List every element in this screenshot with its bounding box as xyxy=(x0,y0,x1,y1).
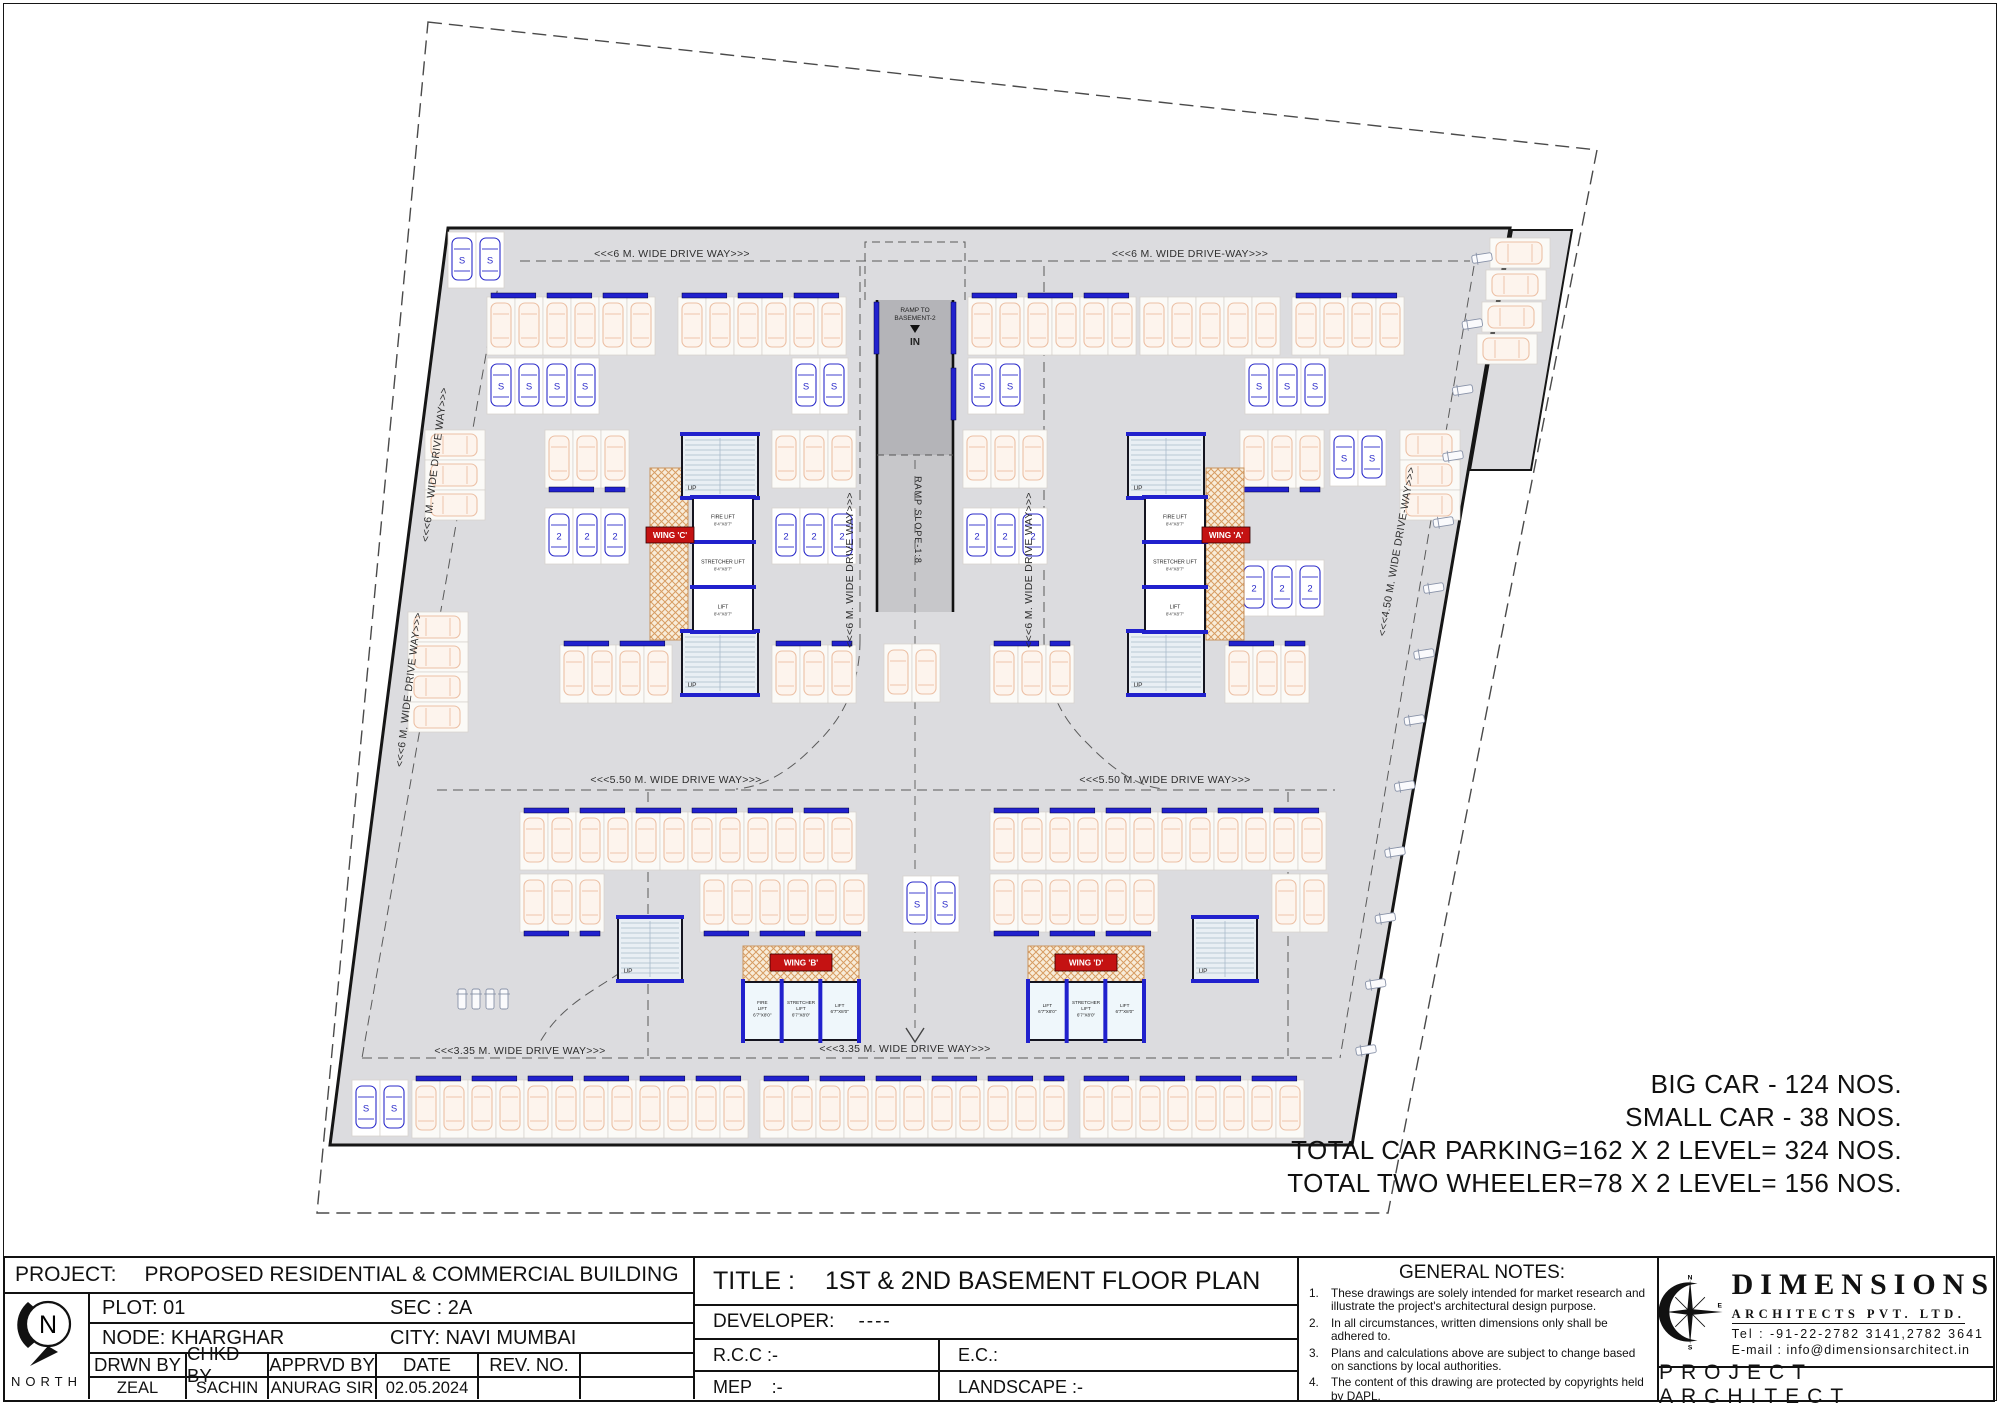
car-icon xyxy=(1272,436,1292,480)
note-item: 2. In all circumstances, written dimensi… xyxy=(1309,1317,1651,1344)
lift-door-bar xyxy=(1026,979,1030,1043)
up-label: UP xyxy=(623,968,632,975)
parking-stats: BIG CAR - 124 NOS. SMALL CAR - 38 NOS. T… xyxy=(1287,1068,1902,1200)
car-icon xyxy=(547,303,567,347)
car-size-label: S xyxy=(1007,382,1013,393)
door-bar xyxy=(1191,915,1259,919)
parking-strip: 222 xyxy=(1240,560,1324,616)
car-size-label: 2 xyxy=(584,532,589,543)
lift-door-bar xyxy=(1065,979,1069,1043)
car-icon xyxy=(1028,303,1048,347)
wheel-stop xyxy=(1218,808,1263,813)
car-size-label: S xyxy=(1256,382,1262,393)
wheel-stop xyxy=(1050,931,1095,936)
compass-logo-icon: N E S xyxy=(1659,1260,1726,1364)
wheel-stop xyxy=(1084,1076,1129,1081)
car-icon xyxy=(820,1086,840,1130)
car-icon xyxy=(549,436,569,480)
lift-size-label: 8'4"X8'7" xyxy=(714,567,733,572)
lift-size-label: 8'4"X8'7" xyxy=(714,612,733,617)
up-label: UP xyxy=(1198,968,1207,975)
plot-value: PLOT: 01 xyxy=(102,1297,185,1320)
lift-name-label: 6'7"X8'0" xyxy=(1116,1009,1135,1014)
car-icon xyxy=(603,303,623,347)
car-icon xyxy=(580,880,600,924)
north-label: NORTH xyxy=(11,1374,82,1389)
car-icon xyxy=(1022,818,1042,862)
car-icon xyxy=(972,303,992,347)
parking-strip xyxy=(1272,874,1328,932)
car-icon xyxy=(720,818,740,862)
mep-cell: MEP :- xyxy=(695,1372,940,1402)
car-icon xyxy=(776,818,796,862)
car-size-label: S xyxy=(363,1104,369,1115)
wheel-stop xyxy=(804,808,849,813)
car-icon xyxy=(552,818,572,862)
car-size-label: S xyxy=(914,900,920,911)
car-icon xyxy=(1106,880,1126,924)
header-date: DATE xyxy=(377,1354,479,1378)
lift-name-label: LIFT xyxy=(758,1006,768,1011)
bike-icon xyxy=(500,989,508,1009)
car-icon xyxy=(414,676,460,698)
lift-door-bar xyxy=(780,979,784,1043)
car-icon xyxy=(1134,818,1154,862)
car-icon xyxy=(1256,303,1276,347)
lift-name-label: STRETCHER LIFT xyxy=(701,560,746,566)
parking-strip xyxy=(700,874,868,936)
car-icon xyxy=(1304,880,1324,924)
wheel-stop xyxy=(1229,641,1274,646)
firm-subtitle: ARCHITECTS PVT. LTD. xyxy=(1732,1307,1966,1324)
car-icon xyxy=(1106,818,1126,862)
car-icon xyxy=(1296,303,1316,347)
wing-label: WING 'C' xyxy=(653,531,687,540)
lift-name-label: FIRE LIFT xyxy=(711,515,736,521)
role-label: PROJECT ARCHITECT xyxy=(1659,1361,1995,1404)
wheel-stop xyxy=(603,293,648,298)
lift-name-label: LIFT xyxy=(1043,1003,1053,1008)
wheel-stop xyxy=(1285,641,1305,646)
door-bar xyxy=(616,915,684,919)
developer-value: ---- xyxy=(858,1311,891,1333)
north-cell: N NORTH xyxy=(5,1294,90,1399)
wheel-stop xyxy=(580,931,600,936)
note-item: 1. These drawings are solely intended fo… xyxy=(1309,1287,1651,1314)
car-icon xyxy=(994,651,1014,695)
lift-size-label: 8'4"X8'7" xyxy=(1166,612,1185,617)
parking-strip xyxy=(487,293,655,355)
car-icon xyxy=(804,436,824,480)
car-icon xyxy=(732,880,752,924)
car-icon xyxy=(1172,303,1192,347)
car-icon xyxy=(1252,1086,1272,1130)
wheel-stop xyxy=(1050,641,1070,646)
note-number: 4. xyxy=(1309,1376,1331,1402)
lift-name-label: 6'7"X8'0" xyxy=(753,1012,772,1017)
lift-name-label: FIRE LIFT xyxy=(1163,515,1188,521)
car-icon xyxy=(605,436,625,480)
lift-name-label: 6'7"X8'0" xyxy=(792,1012,811,1017)
car-icon xyxy=(1246,818,1266,862)
ramp-kerb xyxy=(951,368,956,420)
car-icon xyxy=(1406,434,1452,456)
car-icon xyxy=(1134,880,1154,924)
note-number: 1. xyxy=(1309,1287,1331,1314)
car-icon xyxy=(414,706,460,728)
car-size-label: 2 xyxy=(1307,584,1312,595)
car-size-label: S xyxy=(831,382,837,393)
car-size-label: 2 xyxy=(974,532,979,543)
car-size-label: S xyxy=(391,1104,397,1115)
mep-label: MEP :- xyxy=(713,1377,783,1398)
parking-strip xyxy=(990,874,1158,936)
car-icon xyxy=(844,880,864,924)
car-size-label: 2 xyxy=(783,532,788,543)
landscape-label: LANDSCAPE :- xyxy=(958,1377,1083,1398)
developer-row: DEVELOPER: ---- xyxy=(695,1306,1299,1340)
note-text: In all circumstances, written dimensions… xyxy=(1331,1317,1651,1344)
wheel-stop xyxy=(1050,808,1095,813)
lift-door-bar xyxy=(1142,585,1208,589)
car-icon xyxy=(1050,880,1070,924)
car-icon xyxy=(792,1086,812,1130)
project-value: PROPOSED RESIDENTIAL & COMMERCIAL BUILDI… xyxy=(145,1263,679,1287)
car-icon xyxy=(1257,651,1277,695)
bike-icon xyxy=(486,989,494,1009)
car-icon xyxy=(524,880,544,924)
car-size-label: S xyxy=(942,900,948,911)
wheel-stop xyxy=(528,1076,573,1081)
lift-door-bar xyxy=(1142,630,1208,634)
value-apprvd: ANURAG SIR xyxy=(269,1378,377,1399)
car-size-label: S xyxy=(582,382,588,393)
car-icon xyxy=(764,1086,784,1130)
car-icon xyxy=(524,818,544,862)
car-icon xyxy=(804,818,824,862)
car-size-label: 2 xyxy=(556,532,561,543)
wheel-stop xyxy=(696,1076,741,1081)
parking-strip xyxy=(520,808,856,870)
car-icon xyxy=(1224,1086,1244,1130)
door-bar xyxy=(680,693,760,697)
car-icon xyxy=(552,880,572,924)
car-icon xyxy=(1488,306,1534,328)
wheel-stop xyxy=(1162,808,1207,813)
car-size-label: 2 xyxy=(1279,584,1284,595)
firm-email: E-mail : info@dimensionsarchitect.in xyxy=(1732,1343,1995,1357)
general-notes: GENERAL NOTES: 1. These drawings are sol… xyxy=(1299,1258,1659,1402)
car-icon xyxy=(960,1086,980,1130)
parking-strip xyxy=(1140,297,1280,355)
value-date: 02.05.2024 xyxy=(377,1378,479,1399)
car-icon xyxy=(876,1086,896,1130)
parking-strip xyxy=(1477,334,1537,364)
car-icon xyxy=(1300,436,1320,480)
parking-strip: SSSS xyxy=(487,358,599,414)
car-icon xyxy=(564,651,584,695)
lift-name-label: LIFT xyxy=(1081,1006,1091,1011)
car-icon xyxy=(988,1086,1008,1130)
boundaries xyxy=(317,22,1597,1213)
title-value: 1ST & 2ND BASEMENT FLOOR PLAN xyxy=(825,1267,1260,1296)
rcc-label: R.C.C :- xyxy=(713,1345,778,1366)
note-number: 3. xyxy=(1309,1347,1331,1374)
note-text: These drawings are solely intended for m… xyxy=(1331,1287,1651,1314)
lift-door-bar xyxy=(1142,540,1208,544)
parking-strip: 222 xyxy=(545,508,629,564)
wheel-stop xyxy=(994,808,1039,813)
car-size-label: S xyxy=(803,382,809,393)
car-icon xyxy=(1274,818,1294,862)
wheel-stop xyxy=(605,487,625,492)
note-item: 4. The content of this drawing are prote… xyxy=(1309,1376,1651,1402)
wheel-stop xyxy=(564,641,609,646)
car-icon xyxy=(592,651,612,695)
wheel-stop xyxy=(524,808,569,813)
car-icon xyxy=(995,436,1015,480)
car-icon xyxy=(584,1086,604,1130)
wheel-stop xyxy=(876,1076,921,1081)
car-icon xyxy=(994,818,1014,862)
driveway-label: <<<5.50 M. WIDE DRIVE WAY>>> xyxy=(1079,774,1250,786)
door-bar xyxy=(1126,693,1206,697)
wheel-stop xyxy=(1140,1076,1185,1081)
car-size-label: S xyxy=(554,382,560,393)
car-icon xyxy=(444,1086,464,1130)
car-icon xyxy=(738,303,758,347)
car-icon xyxy=(832,436,852,480)
car-icon xyxy=(1352,303,1372,347)
wheel-stop xyxy=(1106,808,1151,813)
wheel-stop xyxy=(692,808,737,813)
lift-name-label: 6'7"X8'0" xyxy=(1077,1012,1096,1017)
parking-strip xyxy=(678,293,846,355)
car-icon xyxy=(832,818,852,862)
parking-strip xyxy=(968,293,1136,355)
note-text: The content of this drawing are protecte… xyxy=(1331,1376,1651,1402)
ramp-to-label: RAMP TO xyxy=(900,307,929,314)
car-icon xyxy=(1016,1086,1036,1130)
stat-line: TOTAL CAR PARKING=162 X 2 LEVEL= 324 NOS… xyxy=(1287,1134,1902,1167)
wheel-stop xyxy=(682,293,727,298)
wheel-stop xyxy=(640,1076,685,1081)
parking-strip xyxy=(1292,293,1404,355)
parking-strip xyxy=(1240,430,1324,492)
ramp-to-label: BASEMENT-2 xyxy=(894,315,936,322)
parking-strip xyxy=(1482,302,1542,332)
car-icon xyxy=(1218,818,1238,862)
car-icon xyxy=(1492,274,1538,296)
car-size-label: S xyxy=(1284,382,1290,393)
node-row: NODE: KHARGHAR CITY: NAVI MUMBAI xyxy=(90,1324,695,1354)
wheel-stop xyxy=(776,641,821,646)
wheel-stop xyxy=(547,293,592,298)
compass-e: E xyxy=(1717,1303,1722,1310)
wheel-stop xyxy=(748,808,793,813)
wheel-stop xyxy=(1084,293,1129,298)
wheel-stop xyxy=(620,641,665,646)
car-icon xyxy=(631,303,651,347)
car-icon xyxy=(1112,1086,1132,1130)
parking-strip: SS xyxy=(792,358,848,414)
wheel-stop xyxy=(416,1076,461,1081)
parking-strip xyxy=(1225,641,1309,703)
project-architect-strip: PROJECT ARCHITECT xyxy=(1659,1368,1995,1402)
wing-label: WING 'D' xyxy=(1069,959,1103,968)
car-icon xyxy=(1056,303,1076,347)
parking-strip xyxy=(963,430,1047,488)
value-chkd: SACHIN xyxy=(187,1378,269,1399)
car-icon xyxy=(710,303,730,347)
car-size-label: 2 xyxy=(811,532,816,543)
car-size-label: S xyxy=(498,382,504,393)
wheel-stop xyxy=(816,931,861,936)
door-bar xyxy=(680,432,760,436)
wheel-stop xyxy=(580,808,625,813)
car-icon xyxy=(776,651,796,695)
car-icon xyxy=(748,818,768,862)
wheel-stop xyxy=(972,293,1017,298)
drawing-sheet: RAMP TOBASEMENT-2INRAMP SLOPE-1:8 SSSSSS… xyxy=(0,0,2000,1404)
lift-door-bar xyxy=(690,495,756,499)
car-icon xyxy=(648,651,668,695)
wheel-stop xyxy=(1196,1076,1241,1081)
up-label: UP xyxy=(687,682,696,689)
lift-door-bar xyxy=(690,585,756,589)
lift-name-label: LIFT xyxy=(718,605,729,611)
wheel-stop xyxy=(584,1076,629,1081)
car-icon xyxy=(414,646,460,668)
bike-icon xyxy=(458,989,466,1009)
stat-line: TOTAL TWO WHEELER=78 X 2 LEVEL= 156 NOS. xyxy=(1287,1167,1902,1200)
driveway-label: <<<3.35 M. WIDE DRIVE WAY>>> xyxy=(434,1045,605,1057)
car-icon xyxy=(682,303,702,347)
car-icon xyxy=(776,436,796,480)
car-icon xyxy=(416,1086,436,1130)
parking-strip xyxy=(545,430,629,492)
ramp-kerb xyxy=(874,302,879,354)
lift-name-label: LIFT xyxy=(796,1006,806,1011)
parking-strip xyxy=(520,874,604,936)
car-icon xyxy=(1022,880,1042,924)
wheel-stop xyxy=(491,293,536,298)
ec-label: E.C.: xyxy=(958,1345,998,1366)
city-value: CITY: NAVI MUMBAI xyxy=(390,1327,576,1350)
lift-door-bar xyxy=(818,979,822,1043)
parking-strip xyxy=(760,1076,1068,1138)
wheel-stop xyxy=(1300,487,1320,492)
wheel-stop xyxy=(1044,1076,1064,1081)
parking-strip: SSS xyxy=(1245,358,1329,414)
compass-n: N xyxy=(1688,1274,1693,1281)
car-icon xyxy=(431,494,477,516)
value-drwn: ZEAL xyxy=(90,1378,187,1399)
lift-door-bar xyxy=(1142,495,1208,499)
car-icon xyxy=(1285,651,1305,695)
bike-icon xyxy=(472,989,480,1009)
value-blank xyxy=(581,1378,695,1399)
firm-name: DIMENSIONS xyxy=(1732,1268,1995,1302)
lift-name-label: LIFT xyxy=(835,1003,845,1008)
parking-strip xyxy=(412,1076,748,1138)
car-icon xyxy=(1200,303,1220,347)
wheel-stop xyxy=(988,1076,1033,1081)
car-icon xyxy=(1244,436,1264,480)
note-text: Plans and calculations above are subject… xyxy=(1331,1347,1651,1374)
up-label: UP xyxy=(687,485,696,492)
driveway-label: <<<6 M. WIDE DRIVE-WAY>>> xyxy=(1112,248,1268,260)
note-item: 3. Plans and calculations above are subj… xyxy=(1309,1347,1651,1374)
car-icon xyxy=(1144,303,1164,347)
car-icon xyxy=(932,1086,952,1130)
car-icon xyxy=(577,436,597,480)
car-icon xyxy=(967,436,987,480)
header-revno: REV. NO. xyxy=(479,1354,581,1378)
driveway-label: <<<6 M. WIDE DRIVE WAY>>> xyxy=(844,492,856,648)
wheel-stop xyxy=(932,1076,977,1081)
car-icon xyxy=(636,818,656,862)
lift-name-label: 6'7"X8'0" xyxy=(1038,1009,1057,1014)
header-drwn: DRWN BY xyxy=(90,1354,187,1378)
ramp-upper xyxy=(877,300,953,455)
car-icon xyxy=(794,303,814,347)
car-size-label: S xyxy=(459,256,465,267)
car-icon xyxy=(1084,303,1104,347)
lift-name-label: 6'7"X8'0" xyxy=(831,1009,850,1014)
wheel-stop xyxy=(760,931,805,936)
car-icon xyxy=(1228,303,1248,347)
wheel-stop xyxy=(704,931,749,936)
car-size-label: S xyxy=(1369,454,1375,465)
car-icon xyxy=(472,1086,492,1130)
parking-strip: SS xyxy=(448,232,504,288)
lift-name-label: STRETCHER xyxy=(787,1000,816,1005)
car-icon xyxy=(1044,1086,1064,1130)
note-number: 2. xyxy=(1309,1317,1331,1344)
car-icon xyxy=(696,1086,716,1130)
parking-strip: SS xyxy=(352,1080,408,1136)
wheel-stop xyxy=(1244,487,1289,492)
car-icon xyxy=(1050,651,1070,695)
car-icon xyxy=(832,651,852,695)
project-label: PROJECT: xyxy=(15,1263,117,1287)
north-arrow-icon: N xyxy=(4,1294,89,1372)
car-icon xyxy=(916,650,936,694)
plot-row: PLOT: 01 SEC : 2A xyxy=(90,1294,695,1324)
car-size-label: S xyxy=(526,382,532,393)
value-revno xyxy=(479,1378,581,1399)
car-icon xyxy=(664,818,684,862)
car-icon xyxy=(491,303,511,347)
parking-strip: SS xyxy=(1330,430,1386,486)
car-icon xyxy=(1406,494,1452,516)
car-size-label: 2 xyxy=(612,532,617,543)
car-icon xyxy=(804,651,824,695)
car-icon xyxy=(888,650,908,694)
car-icon xyxy=(692,818,712,862)
header-blank xyxy=(581,1354,695,1378)
car-size-label: S xyxy=(1341,454,1347,465)
car-icon xyxy=(1496,242,1542,264)
driveway-label: <<<5.50 M. WIDE DRIVE WAY>>> xyxy=(590,774,761,786)
car-icon xyxy=(766,303,786,347)
car-size-label: S xyxy=(487,256,493,267)
stat-line: BIG CAR - 124 NOS. xyxy=(1287,1068,1902,1101)
car-icon xyxy=(1302,818,1322,862)
parking-strip xyxy=(990,808,1326,870)
up-label: UP xyxy=(1133,485,1142,492)
